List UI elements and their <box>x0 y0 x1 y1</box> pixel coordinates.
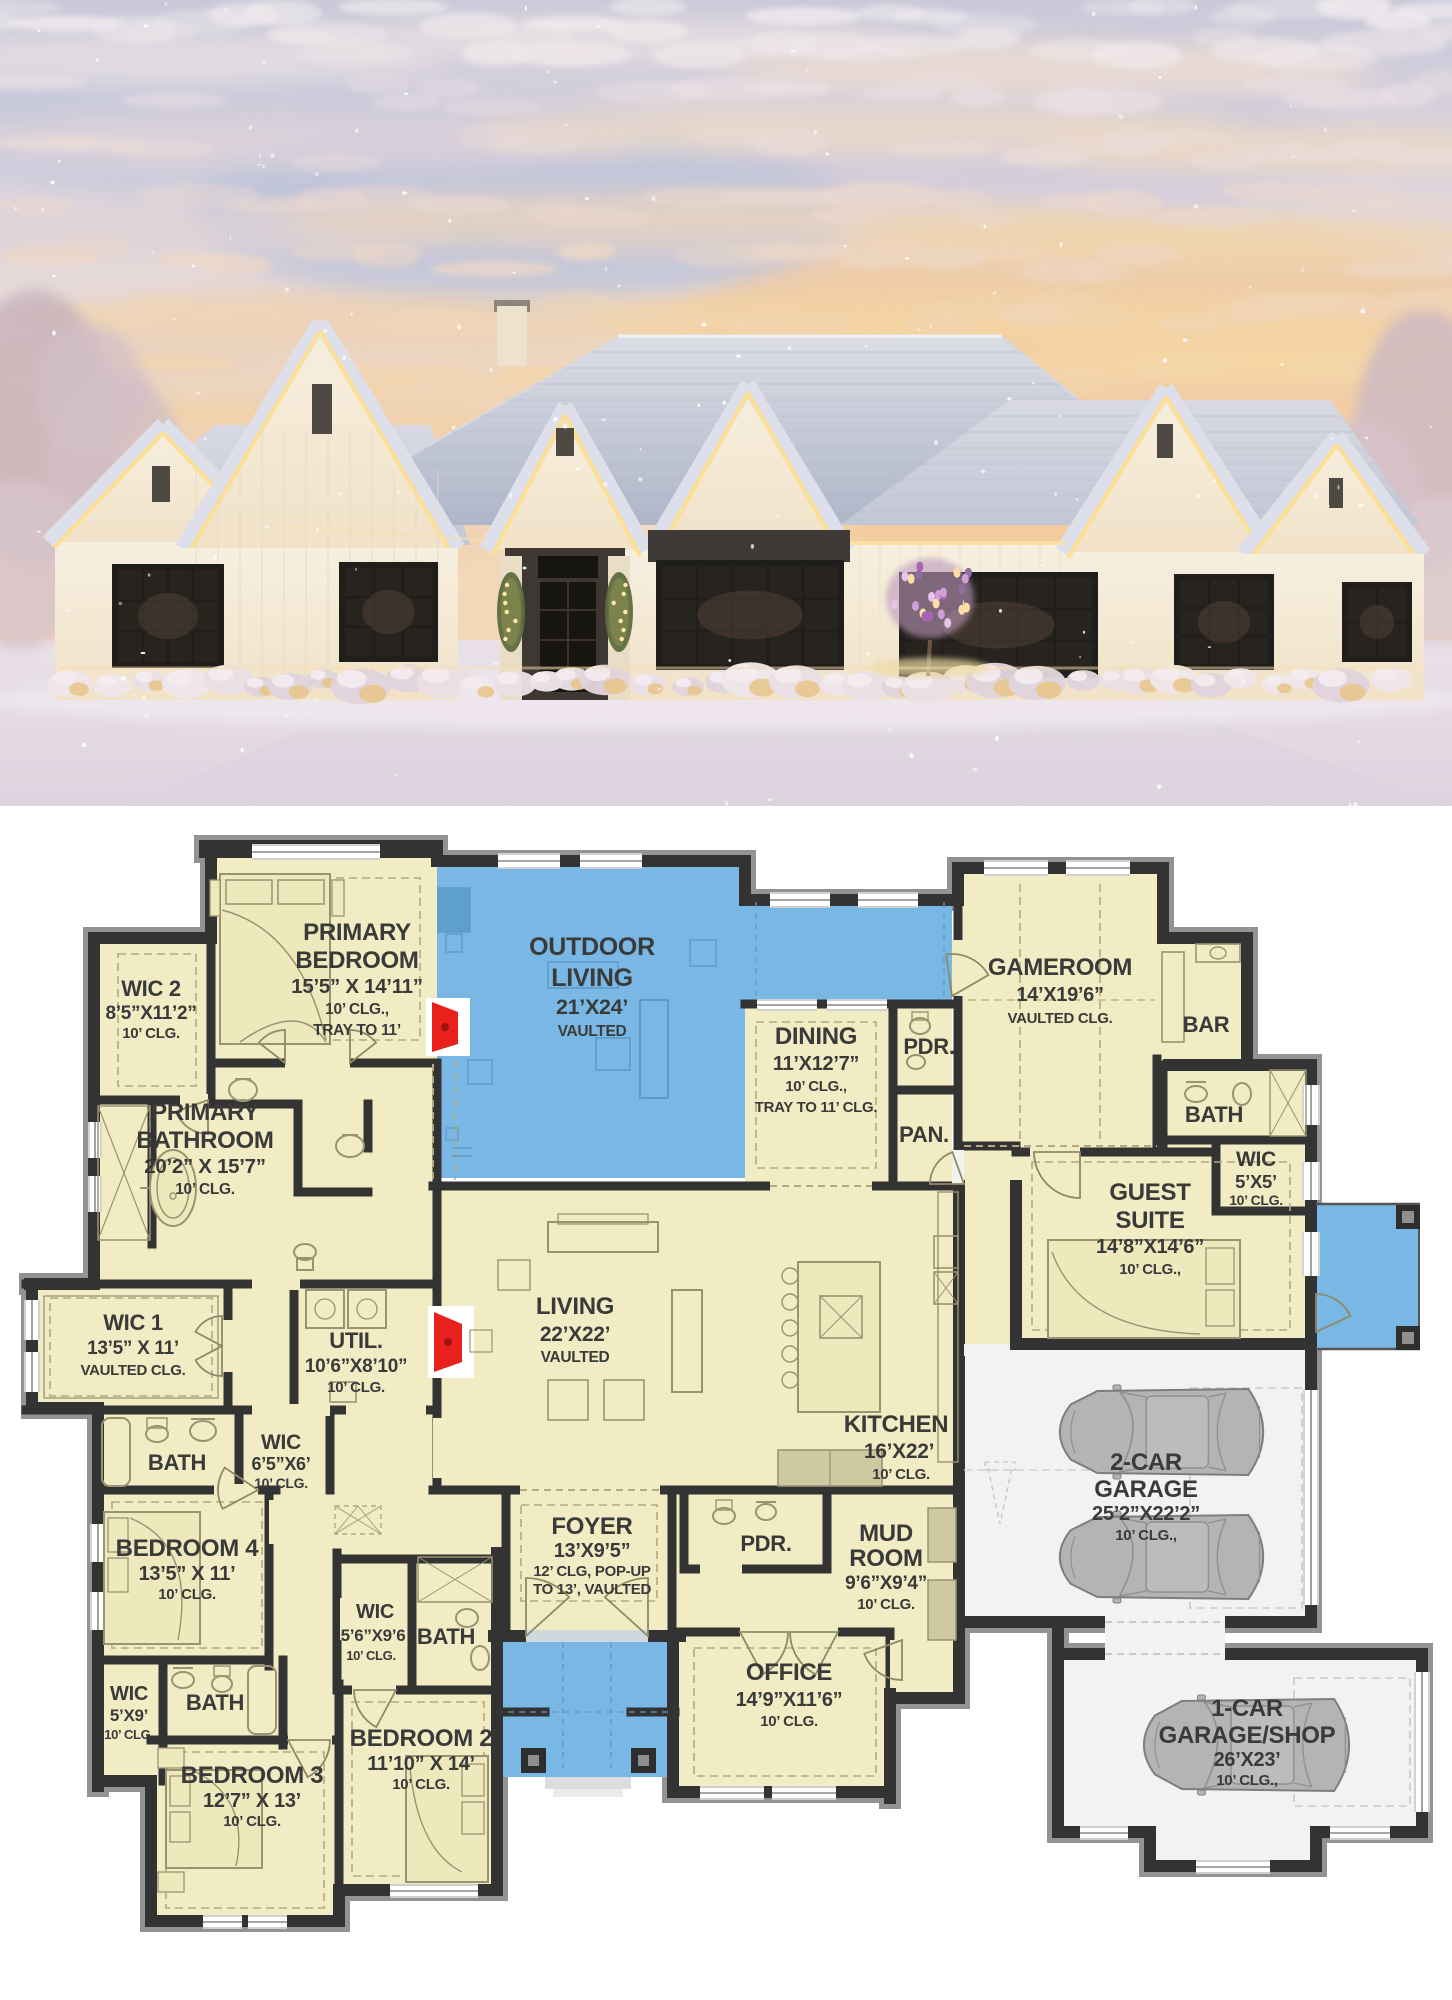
svg-text:13’X9’5”: 13’X9’5” <box>554 1540 631 1562</box>
svg-text:BEDROOM 4: BEDROOM 4 <box>116 1535 260 1562</box>
svg-text:5’X5’: 5’X5’ <box>1235 1171 1277 1192</box>
svg-text:DINING: DINING <box>775 1023 857 1050</box>
svg-text:BAR: BAR <box>1183 1012 1230 1037</box>
svg-text:GUEST: GUEST <box>1109 1179 1191 1206</box>
svg-text:15’5” X 14’11”: 15’5” X 14’11” <box>291 975 422 998</box>
svg-text:10’ CLG.: 10’ CLG. <box>1229 1192 1283 1208</box>
svg-text:OFFICE: OFFICE <box>746 1659 832 1686</box>
svg-text:11’X12’7”: 11’X12’7” <box>773 1053 859 1075</box>
svg-text:10’ CLG.: 10’ CLG. <box>158 1586 216 1603</box>
svg-text:LIVING: LIVING <box>551 964 633 992</box>
svg-text:PDR.: PDR. <box>740 1531 791 1556</box>
svg-text:BATH: BATH <box>148 1450 206 1475</box>
svg-text:TRAY TO 11’: TRAY TO 11’ <box>313 1022 401 1039</box>
svg-text:FOYER: FOYER <box>551 1513 632 1540</box>
svg-text:10’ CLG.: 10’ CLG. <box>175 1181 235 1198</box>
svg-text:BEDROOM: BEDROOM <box>295 947 418 974</box>
svg-text:8’5”X11’2”: 8’5”X11’2” <box>105 1003 196 1024</box>
svg-text:10’ CLG.: 10’ CLG. <box>760 1713 818 1730</box>
svg-text:20’2” X 15’7”: 20’2” X 15’7” <box>144 1155 265 1178</box>
svg-text:WIC 1: WIC 1 <box>103 1310 163 1335</box>
svg-text:10’ CLG.: 10’ CLG. <box>223 1813 281 1830</box>
svg-text:5’X9’: 5’X9’ <box>110 1706 148 1725</box>
svg-text:21’X24’: 21’X24’ <box>556 995 628 1019</box>
svg-text:6’5”X6’: 6’5”X6’ <box>252 1454 311 1474</box>
svg-text:10’ CLG.: 10’ CLG. <box>327 1379 385 1396</box>
svg-text:10’ CLG.: 10’ CLG. <box>254 1475 308 1491</box>
svg-text:14’X19’6”: 14’X19’6” <box>1016 984 1103 1006</box>
svg-text:SUITE: SUITE <box>1115 1207 1184 1234</box>
svg-text:OUTDOOR: OUTDOOR <box>529 933 655 961</box>
svg-text:WIC 2: WIC 2 <box>121 976 181 1001</box>
svg-text:10’ CLG.: 10’ CLG. <box>346 1648 396 1663</box>
svg-text:WIC: WIC <box>356 1601 394 1623</box>
svg-text:GAMEROOM: GAMEROOM <box>988 954 1132 981</box>
svg-text:13’5” X 11’: 13’5” X 11’ <box>87 1338 179 1359</box>
svg-text:BATH: BATH <box>417 1624 475 1649</box>
svg-text:VAULTED CLG.: VAULTED CLG. <box>80 1362 185 1379</box>
svg-text:TRAY TO 11’ CLG.: TRAY TO 11’ CLG. <box>755 1099 878 1116</box>
svg-text:PAN.: PAN. <box>899 1122 949 1147</box>
svg-text:WIC: WIC <box>1236 1148 1276 1171</box>
svg-text:11’10” X 14’: 11’10” X 14’ <box>367 1753 475 1775</box>
svg-text:2-CAR: 2-CAR <box>1110 1449 1182 1476</box>
svg-text:10’ CLG.: 10’ CLG. <box>122 1025 180 1042</box>
svg-text:BEDROOM 2: BEDROOM 2 <box>350 1725 493 1752</box>
svg-text:13’5” X 11’: 13’5” X 11’ <box>139 1563 236 1585</box>
svg-text:KITCHEN: KITCHEN <box>844 1411 949 1438</box>
svg-text:UTIL.: UTIL. <box>329 1328 383 1353</box>
svg-text:22’X22’: 22’X22’ <box>540 1323 610 1346</box>
svg-text:10’ CLG.: 10’ CLG. <box>392 1776 450 1793</box>
svg-text:BATHROOM: BATHROOM <box>136 1127 273 1154</box>
svg-text:9’6”X9’4”: 9’6”X9’4” <box>845 1573 927 1594</box>
svg-text:10’ CLG.: 10’ CLG. <box>872 1466 930 1483</box>
svg-text:MUD: MUD <box>859 1520 913 1547</box>
svg-text:BATH: BATH <box>1185 1102 1243 1127</box>
svg-text:VAULTED CLG.: VAULTED CLG. <box>1007 1010 1112 1027</box>
svg-text:GARAGE: GARAGE <box>1094 1476 1198 1503</box>
svg-text:PRIMARY: PRIMARY <box>303 919 411 946</box>
svg-text:WIC: WIC <box>261 1431 301 1454</box>
svg-text:10’ CLG.,: 10’ CLG., <box>325 1001 389 1018</box>
svg-text:LIVING: LIVING <box>536 1293 614 1320</box>
svg-text:VAULTED: VAULTED <box>558 1023 627 1040</box>
svg-text:10’6”X8’10”: 10’6”X8’10” <box>305 1356 407 1377</box>
svg-text:BEDROOM 3: BEDROOM 3 <box>181 1762 324 1789</box>
svg-text:VAULTED: VAULTED <box>541 1349 610 1366</box>
svg-text:GARAGE/SHOP: GARAGE/SHOP <box>1159 1722 1336 1749</box>
svg-text:10’ CLG.,: 10’ CLG., <box>1119 1261 1181 1278</box>
svg-text:14’8”X14’6”: 14’8”X14’6” <box>1096 1236 1204 1258</box>
svg-text:10’ CLG.,: 10’ CLG., <box>785 1078 847 1095</box>
svg-text:ROOM: ROOM <box>849 1545 922 1572</box>
svg-text:12’7” X 13’: 12’7” X 13’ <box>203 1790 301 1812</box>
svg-text:BATH: BATH <box>186 1690 244 1715</box>
svg-text:25’2”X22’2”: 25’2”X22’2” <box>1092 1503 1200 1525</box>
svg-text:TO 13’, VAULTED: TO 13’, VAULTED <box>533 1581 651 1598</box>
svg-text:14’9”X11’6”: 14’9”X11’6” <box>736 1689 843 1711</box>
svg-text:10’ CLG.,: 10’ CLG., <box>1115 1527 1177 1544</box>
svg-text:10’ CLG.: 10’ CLG. <box>104 1727 154 1742</box>
svg-text:5’6”X9’6: 5’6”X9’6 <box>341 1626 406 1645</box>
svg-text:26’X23’: 26’X23’ <box>1214 1749 1281 1771</box>
svg-text:1-CAR: 1-CAR <box>1211 1695 1283 1722</box>
svg-text:PRIMARY: PRIMARY <box>151 1099 259 1126</box>
svg-text:16’X22’: 16’X22’ <box>864 1440 934 1463</box>
svg-text:WIC: WIC <box>110 1683 148 1705</box>
svg-text:12’ CLG, POP-UP: 12’ CLG, POP-UP <box>533 1563 650 1580</box>
svg-text:10’ CLG.,: 10’ CLG., <box>1216 1772 1278 1789</box>
svg-text:PDR.: PDR. <box>903 1034 954 1059</box>
svg-text:10’ CLG.: 10’ CLG. <box>857 1596 915 1613</box>
